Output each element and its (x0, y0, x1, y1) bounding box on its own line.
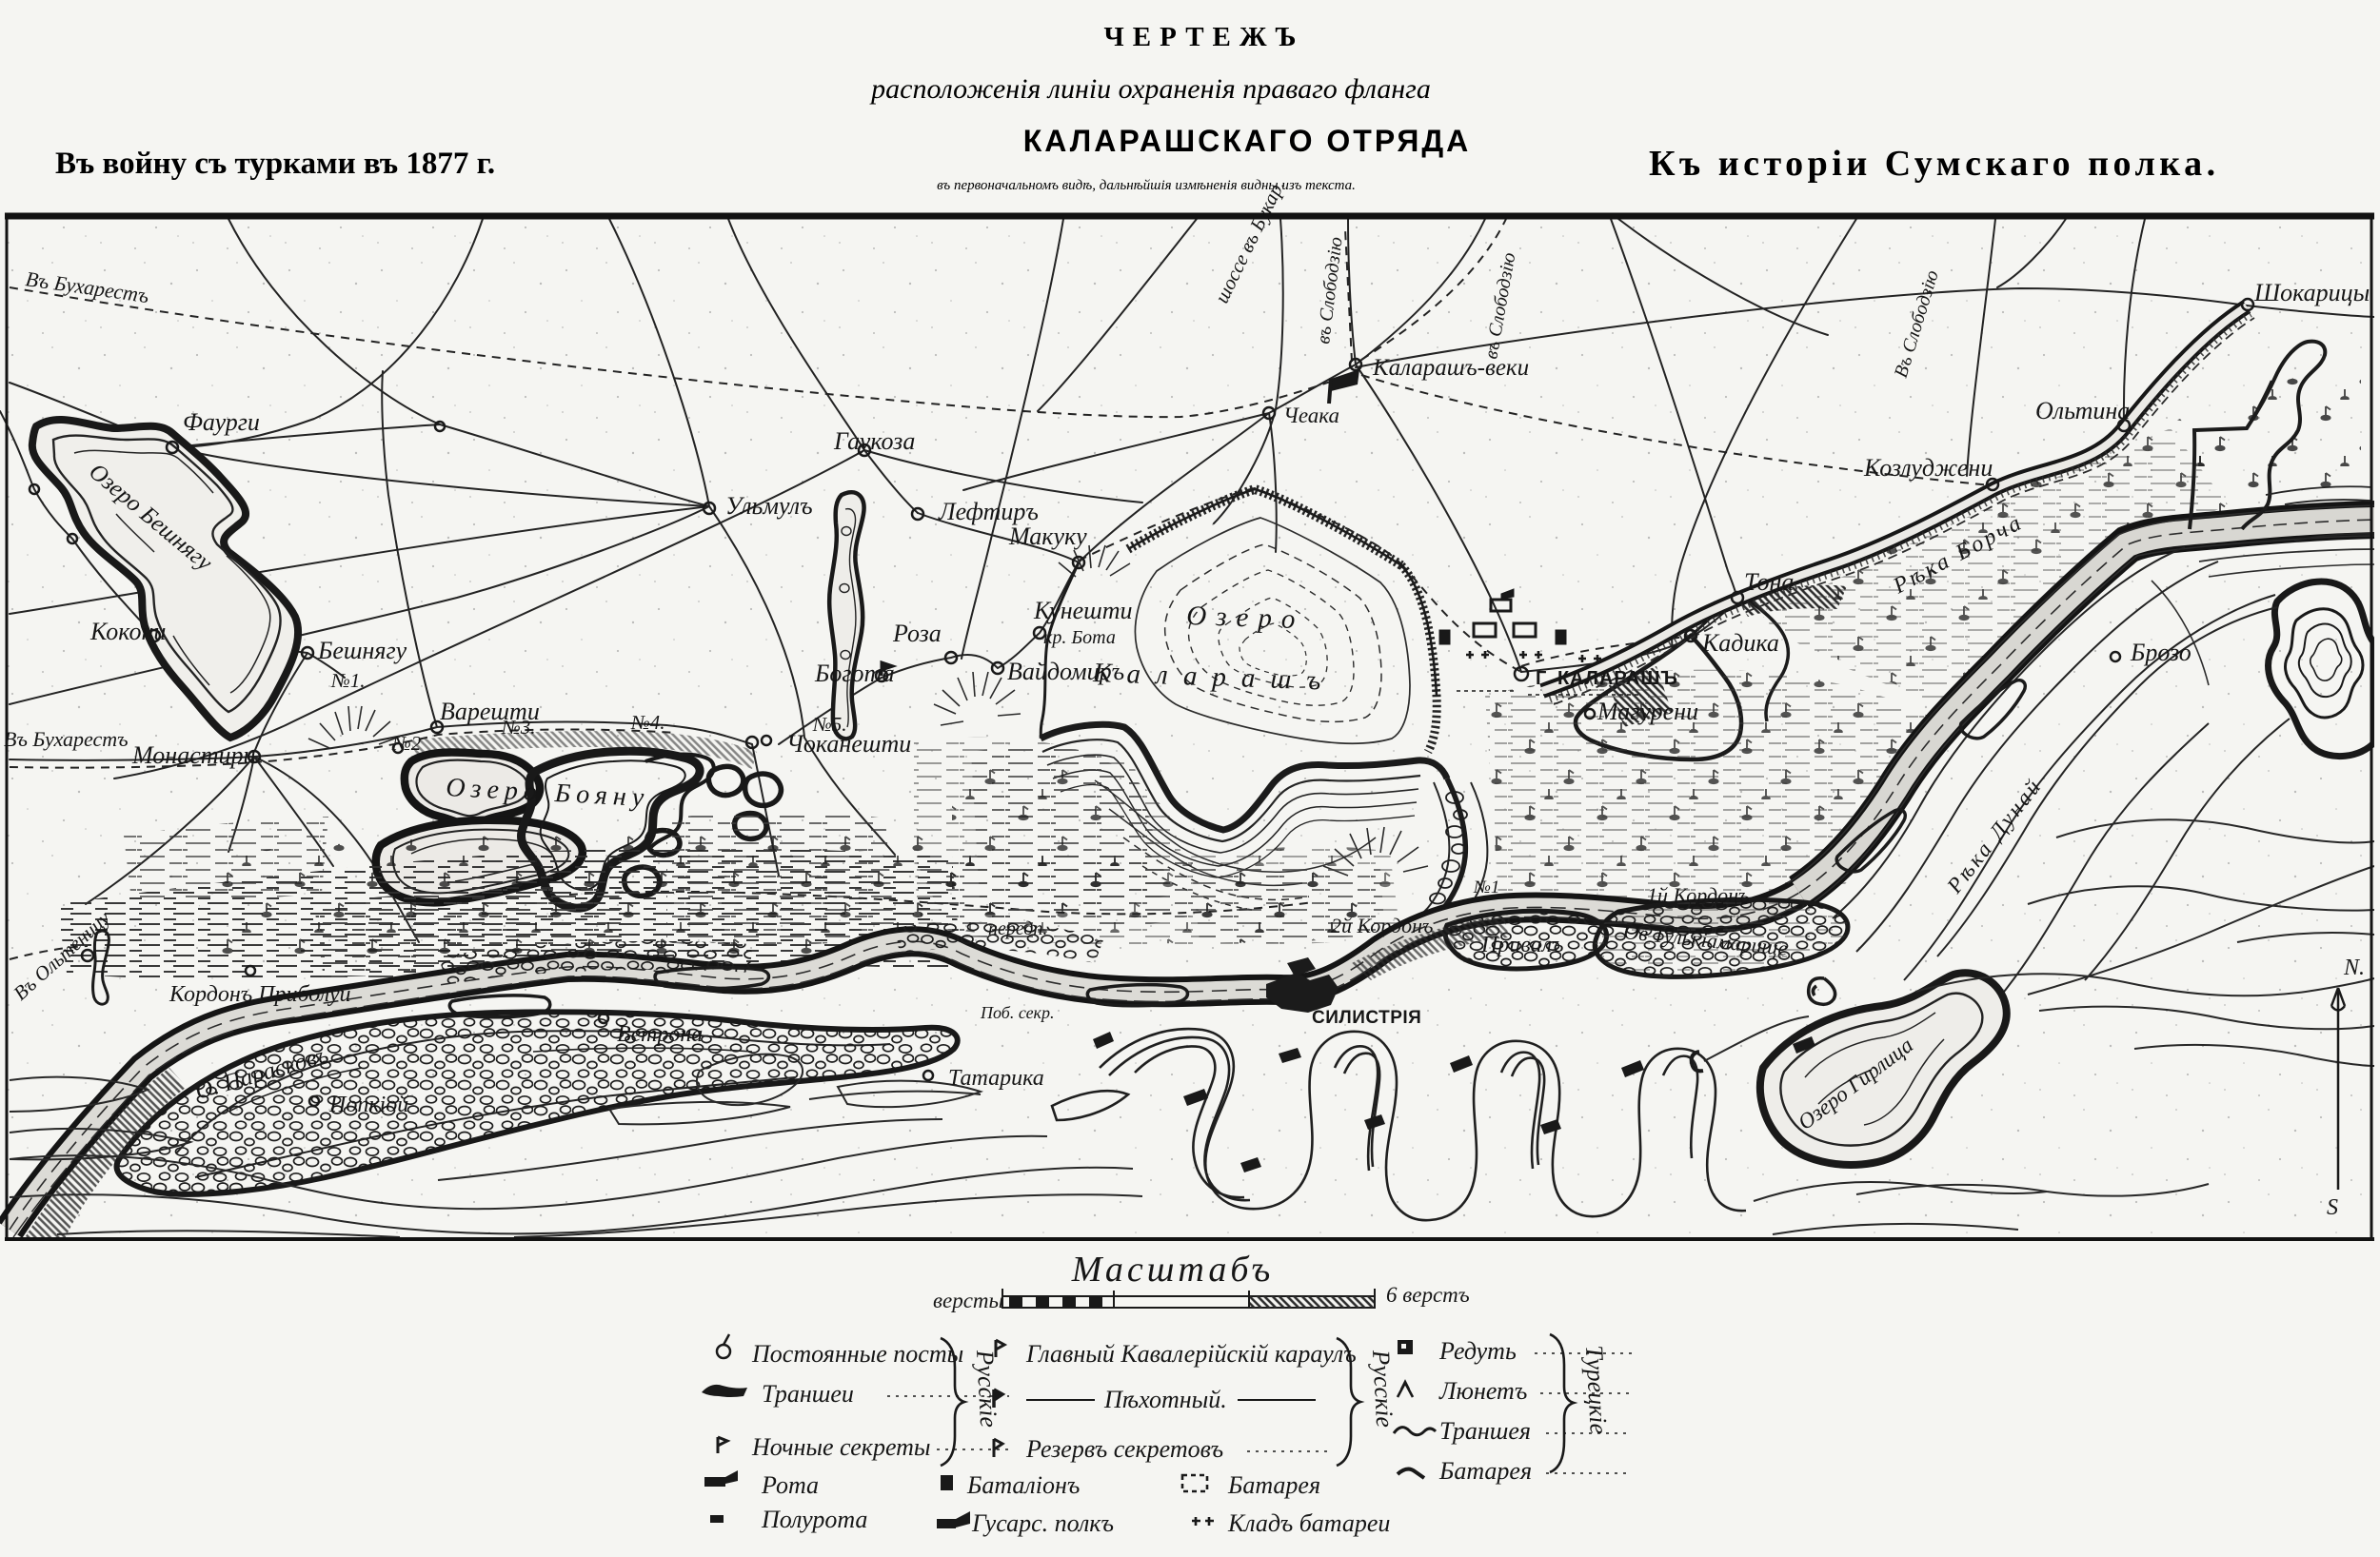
svg-text:№1.: №1. (330, 669, 366, 692)
svg-text:2й Кордонъ: 2й Кордонъ (1331, 914, 1433, 937)
svg-text:Ольтина: Ольтина (2035, 397, 2130, 424)
svg-text:6 верстъ: 6 верстъ (1386, 1283, 1470, 1307)
svg-text:Тона: Тона (1744, 568, 1794, 596)
svg-text:№4.: №4. (630, 711, 665, 734)
svg-text:Чоканешти: Чоканешти (786, 730, 911, 758)
svg-text:Люнетъ: Люнетъ (1438, 1377, 1527, 1405)
svg-text:Батарея: Батарея (1227, 1471, 1320, 1499)
svg-text:Ульмулъ: Ульмулъ (725, 492, 813, 520)
svg-text:Ночные секреты: Ночные секреты (751, 1433, 931, 1461)
svg-text:Ветрона: Ветрона (617, 1022, 703, 1047)
svg-text:КАЛАРАШСКАГО ОТРЯДА: КАЛАРАШСКАГО ОТРЯДА (1023, 124, 1472, 158)
svg-text:Редуть: Редуть (1438, 1337, 1517, 1365)
svg-text:1й Кордонъ: 1й Кордонъ (1647, 883, 1749, 907)
svg-text:Кадика: Кадика (1701, 629, 1779, 657)
svg-text:Богота: Богота (814, 660, 895, 687)
svg-text:Батарея: Батарея (1438, 1457, 1532, 1485)
svg-text:Гусарс. полкъ: Гусарс. полкъ (971, 1509, 1114, 1537)
svg-text:Кладъ батареи: Кладъ батареи (1227, 1509, 1390, 1537)
svg-text:Поб. секр.: Поб. секр. (980, 1003, 1054, 1022)
svg-text:Въ Бухарестъ: Въ Бухарестъ (4, 727, 129, 751)
svg-text:Русскіе: Русскіе (1367, 1349, 1398, 1429)
svg-text:версты: версты (933, 1289, 1003, 1312)
svg-text:Турецкіе: Турецкіе (1580, 1345, 1613, 1435)
svg-text:Гаукоза: Гаукоза (833, 427, 915, 455)
svg-text:кр. Бота: кр. Бота (1043, 627, 1116, 648)
svg-text:передп.: передп. (988, 918, 1047, 939)
svg-text:S: S (2327, 1195, 2338, 1220)
svg-text:Бешнягу: Бешнягу (317, 637, 407, 664)
svg-text:Кунешти: Кунешти (1033, 597, 1133, 624)
svg-text:Къ исторіи Сумскаго полка.: Къ исторіи Сумскаго полка. (1649, 144, 2220, 184)
svg-text:Русскіе: Русскіе (971, 1349, 1002, 1429)
svg-text:СИЛИСТРІЯ: СИЛИСТРІЯ (1312, 1008, 1421, 1028)
svg-text:Чеака: Чеака (1283, 404, 1339, 427)
svg-text:N.: N. (2343, 956, 2365, 980)
svg-text:Лефтиръ: Лефтиръ (938, 498, 1039, 525)
svg-text:Козлуджени: Козлуджени (1863, 454, 1993, 482)
svg-text:Шокарицы: Шокарицы (2253, 279, 2370, 306)
svg-text:Макуку: Макуку (1008, 522, 1087, 550)
svg-text:Кордонъ Приболуй: Кордонъ Приболуй (169, 982, 351, 1007)
svg-text:Полурота: Полурота (761, 1506, 867, 1533)
svg-text:Каларашъ-веки: Каларашъ-веки (1372, 355, 1529, 381)
svg-text:Вайдомиръ: Вайдомиръ (1007, 658, 1124, 685)
svg-text:Фаурги: Фаурги (183, 408, 260, 436)
svg-text:Масштабъ: Масштабъ (1071, 1250, 1274, 1290)
svg-text:Роза: Роза (892, 620, 942, 647)
svg-text:въ первоначальномъ видѣ, дальн: въ первоначальномъ видѣ, дальнѣйшія измѣ… (937, 178, 1356, 193)
svg-text:Постоянные посты: Постоянные посты (751, 1340, 963, 1368)
svg-text:Привалъ: Привалъ (1480, 933, 1564, 957)
svg-text:Баталіонъ: Баталіонъ (966, 1471, 1080, 1499)
svg-text:Траншеи: Траншеи (762, 1380, 854, 1408)
svg-text:Главный Кавалерійскій караулъ: Главный Кавалерійскій караулъ (1025, 1340, 1357, 1368)
svg-text:№3.: №3. (501, 716, 536, 739)
svg-text:Брозо: Брозо (2130, 639, 2192, 666)
svg-text:Въ войну съ турками въ 1877 г.: Въ войну съ турками въ 1877 г. (55, 147, 495, 181)
svg-text:№5.: №5. (812, 713, 847, 736)
svg-text:Монастири: Монастири (131, 741, 256, 769)
svg-text:Попкіой: Попкіой (328, 1093, 408, 1117)
svg-text:расположенія линіи охраненія п: расположенія линіи охраненія праваго фла… (869, 73, 1431, 105)
svg-text:Магурени: Магурени (1597, 698, 1698, 725)
svg-text:Татарика: Татарика (948, 1066, 1044, 1091)
svg-text:Рота: Рота (761, 1471, 819, 1499)
svg-text:Озеро: Озеро (1186, 601, 1305, 635)
svg-text:Траншея: Траншея (1439, 1417, 1531, 1445)
svg-text:Пѣхотный.: Пѣхотный. (1103, 1386, 1227, 1413)
svg-text:Г. КАЛАРАШЪ: Г. КАЛАРАШЪ (1536, 668, 1678, 689)
svg-text:№1: №1 (1473, 877, 1499, 897)
svg-text:ЧЕРТЕЖЪ: ЧЕРТЕЖЪ (1104, 22, 1305, 52)
svg-text:Резервъ секретовъ: Резервъ секретовъ (1025, 1435, 1223, 1463)
